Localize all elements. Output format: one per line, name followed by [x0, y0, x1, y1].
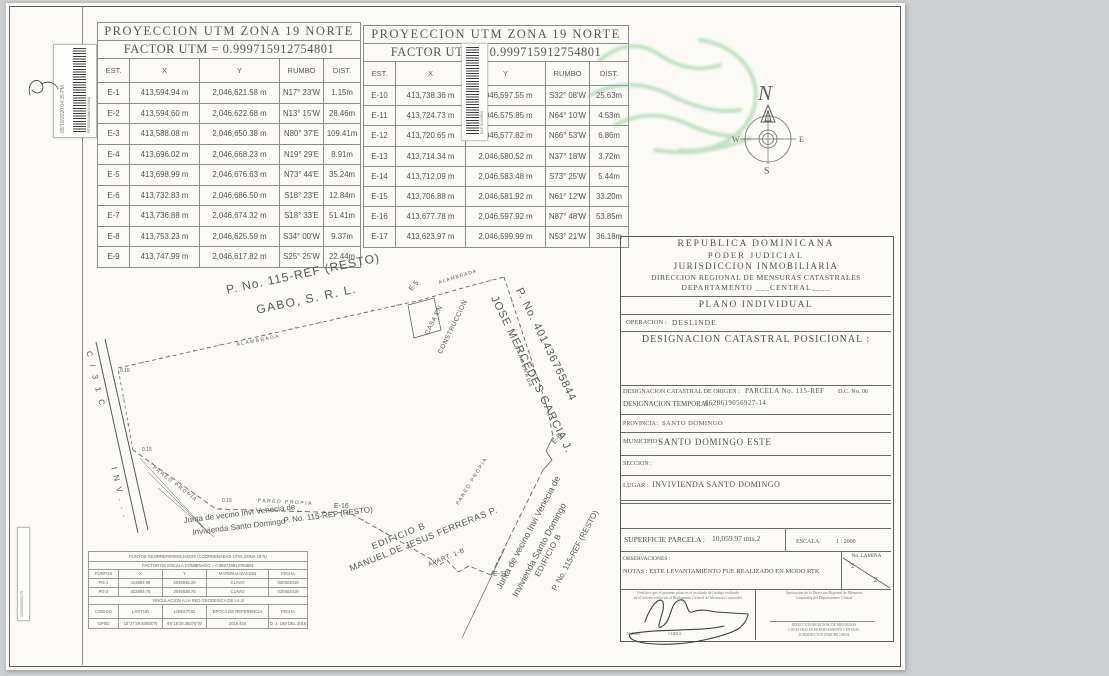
georef-title: PUNTOS GEORREFERENCIADOS (COORDENADAS UT…	[89, 552, 308, 562]
tb-operacion-value: DESLINDE	[672, 318, 717, 327]
compass-south-label: S	[764, 166, 770, 177]
utm-cell: S18° 33'E	[280, 206, 324, 227]
utm-cell: 413,696.02 m	[130, 144, 200, 165]
utm-header: EST.	[98, 59, 130, 83]
barcode-icon	[466, 47, 479, 135]
utm-cell: E-3	[98, 124, 130, 145]
barcode-icon	[73, 48, 86, 134]
georef-cell: 2046836.76	[163, 588, 207, 597]
georef-header: MATERIALIZACION	[207, 570, 269, 579]
utm-cell: 2,046,674.32 m	[200, 206, 280, 227]
utm-cell: 2,046,676.63 m	[200, 165, 280, 186]
georef-header: EPOCA DE REFERENCIA	[207, 605, 269, 619]
tb-origen-label: DESIGNACION CATASTRAL DE ORIGEN :	[623, 388, 740, 395]
utm-cell: E-14	[364, 166, 396, 186]
utm-cell: 2,046,597.92 m	[466, 207, 546, 227]
utm-cell: 413,732.83 m	[130, 185, 200, 206]
barcode-digits: DCP 91419906	[480, 50, 484, 134]
utm-cell: E-8	[98, 226, 130, 247]
scan-page: 05/10/2020 04:35 PM FE0525A8MDH29AA 4250…	[0, 0, 1109, 676]
utm-cell: E-2	[98, 103, 130, 124]
tb-provincia-value: SANTO DOMINGO	[662, 420, 723, 427]
utm-row: E-2413,594.60 m2,046,622.68 mN13° 15'W28…	[98, 103, 361, 124]
utm-header: X	[396, 62, 466, 86]
utm-cell: 2,046,580.52 m	[466, 146, 546, 166]
utm-cell: S25° 25'W	[280, 247, 324, 268]
tb-municipio-label: MUNICIPIO :	[623, 438, 661, 445]
utm-cell: 413,706.88 m	[396, 186, 466, 206]
georef-cell: 69°18'20.36375"W	[163, 619, 207, 629]
georef-header: X	[119, 570, 163, 579]
utm-cell: 413,753.23 m	[130, 226, 200, 247]
georef-cell: D. J. 198 DEL 2016	[269, 619, 308, 629]
utm-cell: 413,594.94 m	[130, 83, 200, 104]
utm-cell: E-17	[364, 227, 396, 247]
tb-designacion-posicional: DESIGNACION CATASTRAL POSICIONAL :	[620, 334, 892, 345]
utm-cell: N61° 12'W	[546, 186, 590, 206]
georef-header: PUNTOS	[89, 570, 119, 579]
utm-cell: N19° 29'E	[280, 144, 324, 165]
utm-cell: E-9	[98, 247, 130, 268]
utm-cell: 2,046,625.59 m	[200, 226, 280, 247]
utm-cell: E-7	[98, 206, 130, 227]
scan-timestamp: 05/10/2020 04:35 PM	[60, 49, 66, 133]
utm-cell: 8.91m	[324, 144, 361, 165]
utm-cell: 413,677.78 m	[396, 207, 466, 227]
utm-cell: N87° 48'W	[546, 207, 590, 227]
utm-row: E-3413,588.08 m2,046,650.38 mN80° 37'E10…	[98, 124, 361, 145]
compass-east-label: E	[799, 135, 804, 144]
tb-escala-value: 1 : 2000	[836, 539, 856, 545]
utm-cell: E-1	[98, 83, 130, 104]
tb-temporal-label: DESIGNACION TEMPORAL :	[623, 400, 714, 408]
georef-header: LATITUD	[119, 605, 163, 619]
utm-cell: 22.44m	[324, 247, 361, 268]
utm-header: DIST.	[324, 59, 361, 83]
utm-cell: 53.85m	[590, 207, 629, 227]
compass-west-label: W	[732, 135, 740, 144]
tb-divider	[621, 551, 891, 552]
georef-cell: 18°27'29.63005"N	[119, 619, 163, 629]
utm-cell: N17° 23'W	[280, 83, 324, 104]
signature-rule	[770, 621, 875, 622]
tb-divider	[621, 500, 891, 501]
utm-cell: 2,046,650.38 m	[200, 124, 280, 145]
georef-table-container: PUNTOS GEORREFERENCIADOS (COORDENADAS UT…	[88, 551, 308, 629]
utm-cell: 413,747.99 m	[130, 247, 200, 268]
georef-header: Y	[163, 570, 207, 579]
utm-row: E-5413,698.99 m2,046,676.63 mN73° 44'E35…	[98, 165, 361, 186]
georef-cell: GPSD	[89, 619, 119, 629]
utm-title: PROYECCION UTM ZONA 19 NORTE	[98, 23, 361, 41]
utm-row: E-16413,677.78 m2,046,597.92 mN87° 48'W5…	[364, 207, 629, 227]
tb-departamento: DEPARTAMENTO ___CENTRAL____	[620, 283, 892, 292]
tb-plano-individual: PLANO INDIVIDUAL	[620, 300, 892, 310]
compass-north-label: N	[757, 81, 773, 105]
utm-cell: 413,712.09 m	[396, 166, 466, 186]
tb-cert-left-sign: AGRIM. CODIA	[626, 631, 681, 636]
georef-header: FECHA	[269, 605, 308, 619]
tb-direccion-regional: DIRECCION REGIONAL DE MENSURAS CATASTRAL…	[620, 273, 892, 282]
tb-jurisdiccion: JURISDICCION INMOBILIARIA	[620, 261, 892, 271]
utm-row: E-7413,736.88 m2,046,674.32 mS18° 33'E51…	[98, 206, 361, 227]
utm-cell: 413,736.88 m	[130, 206, 200, 227]
tb-divider	[785, 528, 786, 551]
tb-temporal-value: 6628619056927-14	[705, 400, 766, 407]
georef-factor: FACTOR DE ESCALA COMBINADO = 0.999715912…	[89, 562, 308, 570]
tb-escala-label: ESCALA	[796, 539, 819, 545]
utm-cell: E-13	[364, 146, 396, 166]
tb-cert-right-b3: JURISDICCION INMOBILIARIA	[757, 633, 891, 637]
georef-table: PUNTOS GEORREFERENCIADOS (COORDENADAS UT…	[88, 551, 308, 629]
utm-cell: 28.46m	[324, 103, 361, 124]
georef-cell: 03/06/2019	[269, 588, 308, 597]
utm-cell: 413,714.34 m	[396, 146, 466, 166]
utm-cell: 2,046,583.48 m	[466, 166, 546, 186]
georef-header: FECHA	[269, 570, 308, 579]
utm-cell: E-16	[364, 207, 396, 227]
tb-divider	[621, 503, 891, 504]
georef-cell: 03/06/2019	[269, 579, 308, 588]
utm-cell: E-12	[364, 126, 396, 146]
utm-row: E-15413,706.88 m2,046,581.92 mN61° 12'W3…	[364, 186, 629, 206]
utm-cell: 413,594.60 m	[130, 103, 200, 124]
tb-superficie-label: SUPERFICIE PARCELA :	[624, 535, 705, 544]
utm-cell: 2,046,622.68 m	[200, 103, 280, 124]
utm-cell: 413,738.36 m	[396, 86, 466, 106]
compass-rose: N W E S	[730, 78, 810, 188]
utm-cell: 33.20m	[590, 186, 629, 206]
tb-divider	[621, 314, 891, 315]
tb-lamina-top: 2	[851, 562, 855, 570]
georef-cell: 2016.434	[207, 619, 269, 629]
tb-notas: NOTAS : ESTE LEVANTAMIENTO FUE REALIZADO…	[623, 568, 820, 575]
utm-cell: 51.41m	[324, 206, 361, 227]
tb-cert-right-b2: CATASTRALES DEPARTAMENTO CENTRAL	[757, 628, 891, 632]
tb-lugar-label: LUGAR :	[623, 482, 649, 489]
margin-code-sticker: 4250000000175	[17, 527, 30, 621]
tb-lugar-value: INVIVIENDA SANTO DOMINGO	[652, 480, 780, 489]
tb-provincia-label: PROVINCIA :	[623, 421, 659, 427]
tb-poder-judicial: PODER JUDICIAL	[620, 250, 892, 260]
utm-cell: S34° 00'W	[280, 226, 324, 247]
utm-cell: 1.15m	[324, 83, 361, 104]
utm-cell: 2,046,621.58 m	[200, 83, 280, 104]
tb-lamina-label: No. LAMINA	[842, 553, 891, 559]
tb-operacion-label: OPERACION :	[626, 319, 667, 326]
utm-cell: 413,724.73 m	[396, 106, 466, 126]
tb-divider	[621, 432, 891, 433]
utm-cell: N80° 37'E	[280, 124, 324, 145]
utm-header: EST.	[364, 62, 396, 86]
utm-cell: N73° 44'E	[280, 165, 324, 186]
georef-cell: CLAVO	[207, 588, 269, 597]
tb-municipio-value: SANTO DOMINGO ESTE	[658, 437, 772, 447]
georef-cell: PG-2	[89, 588, 119, 597]
sticker-code: FE0525A8MDH29AA	[87, 49, 91, 133]
georef-cell: CLAVO	[207, 579, 269, 588]
tb-cert-right-b1: DIRECCION REGIONAL DE MENSURAS	[757, 623, 891, 627]
utm-cell: 2,046,599.99 m	[466, 227, 546, 247]
utm-cell: S18° 23'E	[280, 185, 324, 206]
georef-header: CODIGO	[89, 605, 119, 619]
utm-row: E-1413,594.94 m2,046,621.58 mN17° 23'W1.…	[98, 83, 361, 104]
utm-cell: 12.84m	[324, 185, 361, 206]
tb-origen-value: PARCELA No. 115-REF	[745, 387, 825, 395]
utm-cell: 413,698.99 m	[130, 165, 200, 186]
utm-cell: E-5	[98, 165, 130, 186]
overlay-barcode-sticker: DCP 91419906	[461, 43, 488, 141]
utm-cell: 2,046,668.23 m	[200, 144, 280, 165]
utm-cell: 35.24m	[324, 165, 361, 186]
utm-cell: E-11	[364, 106, 396, 126]
utm-cell: 9.37m	[324, 226, 361, 247]
utm-header: RUMBO	[280, 59, 324, 83]
utm-row: E-8413,753.23 m2,046,625.59 mS34° 00'W9.…	[98, 226, 361, 247]
georef-vinc-title: VINCULACION A LA RED GEODESICA DE LA JI	[89, 597, 308, 605]
utm-cell: 2,046,581.92 m	[466, 186, 546, 206]
utm-cell: 109.41m	[324, 124, 361, 145]
utm-cell: N13° 15'W	[280, 103, 324, 124]
utm-cell: 413,588.08 m	[130, 124, 200, 145]
utm-row: E-9413,747.99 m2,046,617.82 mS25° 25'W22…	[98, 247, 361, 268]
utm-cell: 2,046,686.50 m	[200, 185, 280, 206]
georef-cell: 413594.06	[119, 579, 163, 588]
utm-header: X	[130, 59, 200, 83]
tb-seccion-label: SECCION :	[623, 461, 652, 467]
margin-code: 4250000000175	[20, 531, 24, 617]
utm-cell: 2,046,617.82 m	[200, 247, 280, 268]
utm-row: E-4413,696.02 m2,046,668.23 mN19° 29'E8.…	[98, 144, 361, 165]
utm-table-1: PROYECCION UTM ZONA 19 NORTEFACTOR UTM =…	[97, 22, 361, 268]
georef-cell: 2046915.28	[163, 579, 207, 588]
tb-divider	[621, 528, 891, 529]
tb-cert-left-2: en el terreno conforme al Reglamento Gen…	[622, 596, 754, 600]
tb-lamina-bottom: 2	[874, 576, 878, 584]
tb-origen-dc: D.C. No. 06	[838, 388, 868, 395]
utm-cell: 413,623.97 m	[396, 227, 466, 247]
tb-divider	[621, 331, 891, 332]
tb-republica: REPUBLICA DOMINICANA	[620, 239, 892, 249]
georef-header: LONGITUD	[163, 605, 207, 619]
tb-divider	[755, 589, 756, 640]
tb-divider	[621, 455, 891, 456]
utm-cell: E-6	[98, 185, 130, 206]
tb-cert-right-2: Catastrales del Departamento Central	[757, 596, 891, 600]
tb-divider	[621, 385, 891, 386]
utm-cell: E-10	[364, 86, 396, 106]
utm-table-1-container: PROYECCION UTM ZONA 19 NORTEFACTOR UTM =…	[97, 22, 361, 268]
georef-cell: 413594.76	[119, 588, 163, 597]
tb-observaciones: OBSERVACIONES :	[623, 556, 670, 562]
utm-cell: 413,720.65 m	[396, 126, 466, 146]
tb-divider	[621, 414, 891, 415]
utm-cell: N53° 21'W	[546, 227, 590, 247]
tb-superficie-value: 10,059.97 mts.2	[712, 534, 760, 543]
utm-factor: FACTOR UTM = 0.999715912754801	[98, 41, 361, 59]
tb-divider	[621, 589, 891, 590]
tb-cert-right-1: Aprobacion de la Direccion Regional de M…	[757, 591, 891, 595]
tb-divider	[621, 296, 891, 297]
scan-date-sticker: 05/10/2020 04:35 PM FE0525A8MDH29AA	[53, 44, 97, 138]
georef-cell: PG-1	[89, 579, 119, 588]
utm-row: E-6413,732.83 m2,046,686.50 mS18° 23'E12…	[98, 185, 361, 206]
tb-divider	[621, 475, 891, 476]
tb-cert-left-1: Certifico: que el presente plano es el r…	[622, 591, 754, 595]
utm-cell: E-4	[98, 144, 130, 165]
utm-row: E-17413,623.97 m2,046,599.99 mN53° 21'W3…	[364, 227, 629, 247]
utm-cell: E-15	[364, 186, 396, 206]
utm-header: Y	[200, 59, 280, 83]
